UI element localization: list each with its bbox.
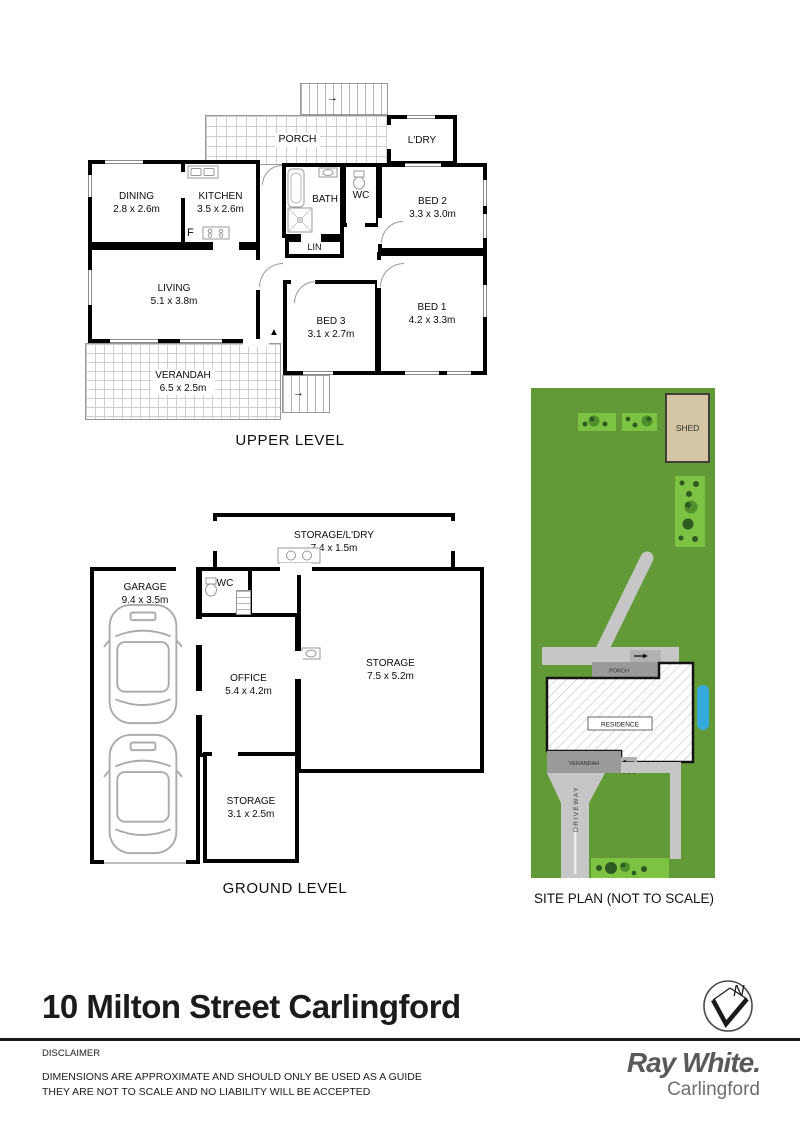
laundry-label: L'DRY xyxy=(408,134,436,147)
site-porch-label: PORCH xyxy=(609,669,629,675)
shower-icon xyxy=(287,207,313,233)
washer-icon xyxy=(277,547,321,564)
door-opening xyxy=(447,521,455,551)
door-arc xyxy=(262,165,282,185)
window xyxy=(110,339,158,343)
divider-rule xyxy=(0,1038,800,1041)
shed-label: SHED xyxy=(676,423,700,433)
room-dining: DINING 2.8 x 2.6m xyxy=(88,160,185,246)
kitchen-sink-icon xyxy=(187,165,219,179)
window xyxy=(483,180,487,206)
living-label: LIVING xyxy=(151,282,198,295)
disclaimer-line1: DIMENSIONS ARE APPROXIMATE AND SHOULD ON… xyxy=(42,1071,422,1083)
window xyxy=(105,160,143,164)
porch-steps xyxy=(300,83,388,115)
site-residence: RESIDENCE xyxy=(547,663,693,762)
kitchen-dims: 3.5 x 2.6m xyxy=(197,203,244,216)
site-residence-label: RESIDENCE xyxy=(601,722,640,729)
site-verandah-label: VERANDAH xyxy=(569,761,600,767)
brand-dot: . xyxy=(753,1047,760,1078)
bed1-dims: 4.2 x 3.3m xyxy=(409,314,456,327)
bed2-label: BED 2 xyxy=(409,195,456,208)
window xyxy=(180,339,222,343)
window xyxy=(88,175,92,197)
garden-bed xyxy=(591,858,669,878)
site-plan-caption: SITE PLAN (NOT TO SCALE) xyxy=(521,891,727,906)
toilet-icon xyxy=(204,577,218,597)
door-opening xyxy=(213,242,239,250)
ground-level-caption: GROUND LEVEL xyxy=(80,880,490,897)
arrow-right-icon: → xyxy=(327,93,338,104)
storage-large-label: STORAGE xyxy=(366,657,415,670)
storage-laundry-label: STORAGE/L'DRY xyxy=(294,529,374,542)
door-opening xyxy=(301,234,321,242)
room-storage-laundry: STORAGE/L'DRY 7.4 x 1.5m xyxy=(213,513,455,571)
bed1-label: BED 1 xyxy=(409,301,456,314)
window xyxy=(447,371,471,375)
floorplan-flyer: → PORCH L'DRY DINING 2.8 x 2.6m KITCHEN … xyxy=(0,0,800,1131)
door-opening xyxy=(176,567,196,575)
verandah-steps xyxy=(282,375,330,413)
north-label: N xyxy=(733,983,745,1000)
car-icon xyxy=(102,731,184,857)
site-plan-graphic: SHED PORCH xyxy=(531,388,715,880)
laundry-tub-icon xyxy=(301,647,321,660)
room-office: OFFICE 5.4 x 4.2m xyxy=(198,613,299,757)
room-laundry: L'DRY xyxy=(387,115,457,165)
window xyxy=(483,285,487,317)
storage-small-label: STORAGE xyxy=(227,795,276,808)
living-dims: 5.1 x 3.8m xyxy=(151,295,198,308)
car-icon xyxy=(102,601,184,727)
door-opening xyxy=(179,172,187,198)
path-horizontal xyxy=(621,762,681,773)
room-storage-large: STORAGE 7.5 x 5.2m xyxy=(297,567,484,773)
verandah-label: VERANDAH xyxy=(155,369,211,382)
door-opening xyxy=(195,691,205,715)
door-opening xyxy=(387,125,392,149)
storage-small-dims: 3.1 x 2.5m xyxy=(227,808,276,821)
ground-level-plan: STORAGE/L'DRY 7.4 x 1.5m GARAGE 9.4 x 3.… xyxy=(80,505,490,905)
bathtub-icon xyxy=(287,168,305,208)
shed: SHED xyxy=(666,394,709,462)
linen-label: LIN xyxy=(307,242,321,254)
water-tank xyxy=(697,685,709,730)
garage-label: GARAGE xyxy=(122,581,169,594)
brand-name: Ray White xyxy=(627,1047,753,1078)
kitchen-label: KITCHEN xyxy=(197,190,244,203)
site-plan: SHED PORCH xyxy=(531,388,717,923)
office-label: OFFICE xyxy=(225,672,272,685)
address-title: 10 Milton Street Carlingford xyxy=(42,988,461,1026)
stove-icon xyxy=(202,226,230,240)
arrow-right-icon: → xyxy=(293,388,304,399)
brand-office: Carlingford xyxy=(627,1079,760,1102)
vanity-sink-icon xyxy=(318,167,338,178)
verandah-dims: 6.5 x 2.5m xyxy=(155,382,211,395)
verandah: VERANDAH 6.5 x 2.5m xyxy=(85,343,281,420)
brand-block: Ray White. Carlingford xyxy=(627,1048,760,1102)
arrow-up-icon: ▲ xyxy=(269,328,279,338)
wc-upper-label: WC xyxy=(353,189,370,202)
dining-dims: 2.8 x 2.6m xyxy=(113,203,160,216)
dining-label: DINING xyxy=(113,190,160,203)
window xyxy=(303,371,333,375)
stairs-icon xyxy=(236,590,251,615)
door-opening xyxy=(212,749,238,759)
disclaimer-heading: DISCLAIMER xyxy=(42,1048,100,1059)
garage-door-line xyxy=(104,862,186,864)
garden-bed xyxy=(578,413,616,431)
north-arrow-icon: N xyxy=(700,979,756,1033)
storage-large-dims: 7.5 x 5.2m xyxy=(366,670,415,683)
room-storage-small: STORAGE 3.1 x 2.5m xyxy=(203,752,299,863)
upper-level-plan: → PORCH L'DRY DINING 2.8 x 2.6m KITCHEN … xyxy=(75,80,505,460)
site-driveway-label: DRIVEWAY xyxy=(573,786,580,832)
door-opening xyxy=(293,651,303,679)
porch: PORCH xyxy=(205,115,390,165)
window xyxy=(483,214,487,238)
fridge-label: F xyxy=(187,227,194,239)
office-dims: 5.4 x 4.2m xyxy=(225,685,272,698)
door-opening xyxy=(195,619,205,645)
room-living: LIVING 5.1 x 3.8m xyxy=(88,246,260,343)
bath-label: BATH xyxy=(312,193,338,206)
driveway-centerline xyxy=(574,828,577,874)
garden-bed xyxy=(622,413,657,431)
window xyxy=(88,270,92,305)
bed2-dims: 3.3 x 3.0m xyxy=(409,208,456,221)
door-opening xyxy=(243,339,269,347)
disclaimer-line2: THEY ARE NOT TO SCALE AND NO LIABILITY W… xyxy=(42,1086,370,1098)
upper-level-caption: UPPER LEVEL xyxy=(75,432,505,449)
window xyxy=(405,371,439,375)
path-vertical xyxy=(670,773,681,859)
bed3-dims: 3.1 x 2.7m xyxy=(308,328,355,341)
window xyxy=(407,115,435,119)
bed3-label: BED 3 xyxy=(308,315,355,328)
door-opening xyxy=(280,563,312,575)
door-opening xyxy=(347,223,365,231)
window xyxy=(405,163,441,167)
porch-label: PORCH xyxy=(275,133,321,147)
garden-bed xyxy=(675,476,705,547)
wc-ground-label: WC xyxy=(217,577,234,590)
toilet-icon xyxy=(352,170,366,190)
door-opening xyxy=(213,521,221,551)
